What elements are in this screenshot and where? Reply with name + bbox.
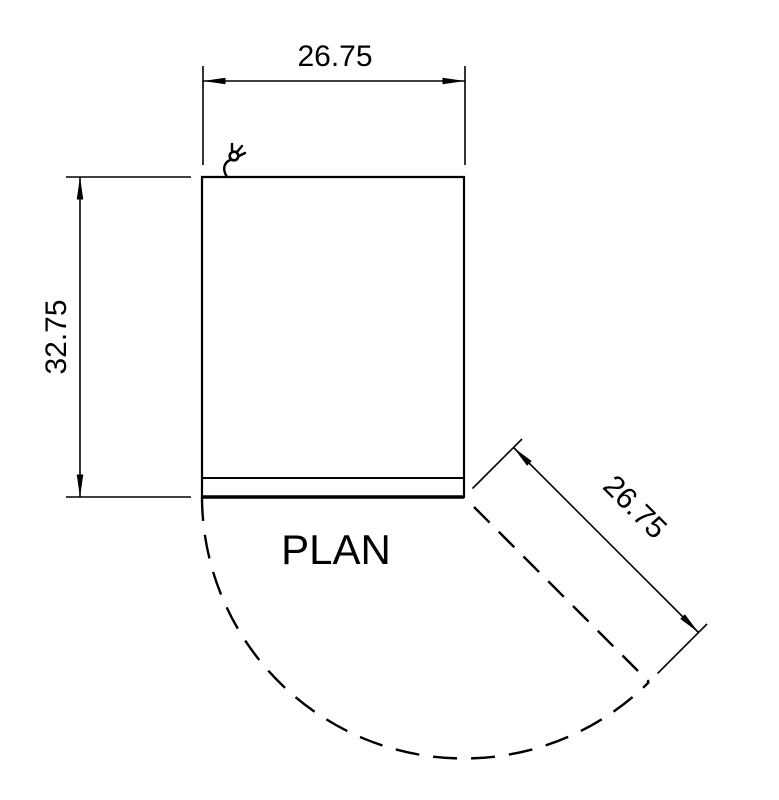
width-dimension-label: 26.75 <box>297 40 372 73</box>
depth-dimension-label: 32.75 <box>40 299 73 374</box>
plan-view-label: PLAN <box>281 526 391 573</box>
door-open-dashed-line <box>474 507 649 682</box>
door-swing-dimension-label: 26.75 <box>597 469 673 545</box>
door-swing-dimension-line <box>514 448 699 633</box>
door-swing-extension-line-upper <box>473 439 523 489</box>
cabinet-outline <box>202 177 464 497</box>
power-cord-icon <box>224 144 245 177</box>
door-swing-arc <box>202 497 649 758</box>
door-swing-extension-line-lower <box>658 624 708 674</box>
technical-drawing-canvas: 26.75 32.75 26.75 PLAN <box>0 0 779 800</box>
plan-view-drawing: 26.75 32.75 26.75 PLAN <box>0 0 779 800</box>
